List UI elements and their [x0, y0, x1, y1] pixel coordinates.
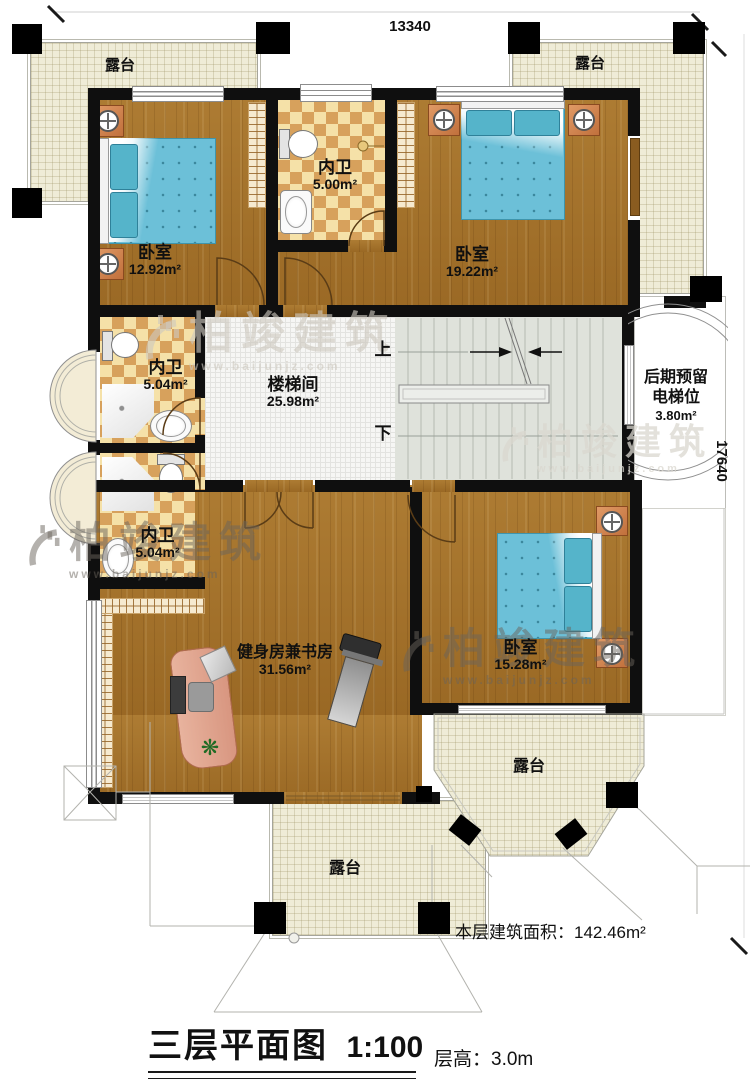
window [300, 84, 372, 102]
room-label-gym-study: 健身房兼书房31.56m² [210, 644, 360, 678]
door-opening [245, 480, 313, 492]
stairs-area [395, 317, 622, 480]
wall [88, 577, 205, 589]
nightstand [428, 104, 460, 136]
stairs-down-label: 下 [370, 424, 396, 443]
wall [88, 305, 100, 352]
room-label-elevator-reserved: 后期预留 电梯位 3.80m² [628, 368, 724, 424]
floor-area-label: 本层建筑面积： [455, 923, 574, 942]
floor-area-note: 本层建筑面积：142.46m² [455, 918, 646, 943]
room-label-terrace-bottom-right: 露台 [494, 758, 564, 776]
room-label-stairwell: 楼梯间25.98m² [248, 375, 338, 410]
wall [315, 480, 410, 492]
wall [195, 435, 205, 453]
column [416, 786, 432, 802]
sink [280, 190, 312, 234]
toilet [279, 128, 319, 160]
nightstand [568, 104, 600, 136]
dimension-right-height: 17640 [712, 426, 730, 496]
brand-logo-icon [24, 522, 64, 570]
wardrobe-gym-top [97, 598, 205, 614]
door-opening [284, 792, 402, 804]
stairs-up-label: 上 [370, 340, 396, 359]
pillow [564, 538, 592, 584]
column [418, 902, 450, 934]
door-opening [195, 398, 205, 435]
floor-height-value: 3.0m [491, 1049, 533, 1070]
door-opening [215, 305, 259, 317]
pillow [514, 110, 560, 136]
column [690, 276, 722, 302]
monitor [170, 676, 186, 714]
column [256, 22, 290, 54]
nightstand [596, 638, 628, 668]
column [673, 22, 705, 54]
column [606, 782, 638, 808]
plan-title-text: 三层平面图 [148, 1027, 328, 1065]
plant-icon: ❋ [198, 736, 222, 760]
room-label-terrace-top-left: 露台 [85, 58, 155, 75]
title-underline [148, 1071, 416, 1079]
window [122, 794, 234, 804]
plan-scale: 1:100 [346, 1031, 423, 1064]
room-label-bath-mid-lower: 内卫5.04m² [120, 526, 195, 561]
wall [410, 487, 422, 715]
pillow [466, 110, 512, 136]
room-label-bedroom-top-left: 卧室12.92m² [115, 243, 195, 278]
door-leaf [630, 138, 640, 216]
dimension-top-width: 13340 [360, 18, 460, 35]
door-opening [283, 305, 327, 317]
room-label-bath-mid-upper: 内卫5.04m² [128, 358, 203, 393]
room-label-bedroom-bottom: 卧室15.28m² [478, 638, 563, 673]
wall [88, 543, 100, 600]
window [436, 86, 564, 102]
window [86, 600, 102, 788]
wall [630, 480, 642, 715]
room-label-bath-top: 内卫5.00m² [300, 158, 370, 193]
office-chair [188, 682, 214, 712]
room-label-bedroom-top-right: 卧室19.22m² [432, 245, 512, 280]
pillow [564, 586, 592, 632]
wall [88, 305, 640, 317]
room-label-terrace-bottom-mid: 露台 [310, 860, 380, 878]
pillow [110, 192, 138, 238]
floor-plan: ❋ [0, 0, 750, 1079]
door-opening [195, 453, 205, 490]
right-side-strip [642, 508, 726, 716]
pillow [110, 144, 138, 190]
floor-height-note: 层高：3.0m [434, 1044, 533, 1071]
nightstand [596, 506, 628, 536]
plan-title: 三层平面图 1:100 [148, 1018, 423, 1079]
wall [88, 480, 243, 492]
wall [266, 95, 278, 312]
floor-height-label: 层高： [434, 1049, 491, 1070]
column [12, 188, 42, 218]
door-opening [412, 480, 455, 492]
wall [455, 480, 640, 492]
door-opening [348, 240, 384, 252]
sink [150, 410, 192, 442]
column [254, 902, 286, 934]
wall [385, 95, 397, 252]
bed-headboard [592, 533, 602, 639]
window [132, 86, 224, 102]
column [508, 22, 540, 54]
wardrobe-bedroom-top-right [397, 102, 415, 208]
floor-area-value: 142.46m² [574, 923, 646, 942]
wall [88, 443, 205, 453]
room-label-terrace-top-right: 露台 [555, 56, 625, 73]
wardrobe-bedroom-top-left [248, 102, 266, 208]
wall [88, 88, 100, 317]
bed-headboard [99, 138, 109, 244]
column [12, 24, 42, 54]
window [458, 705, 606, 714]
